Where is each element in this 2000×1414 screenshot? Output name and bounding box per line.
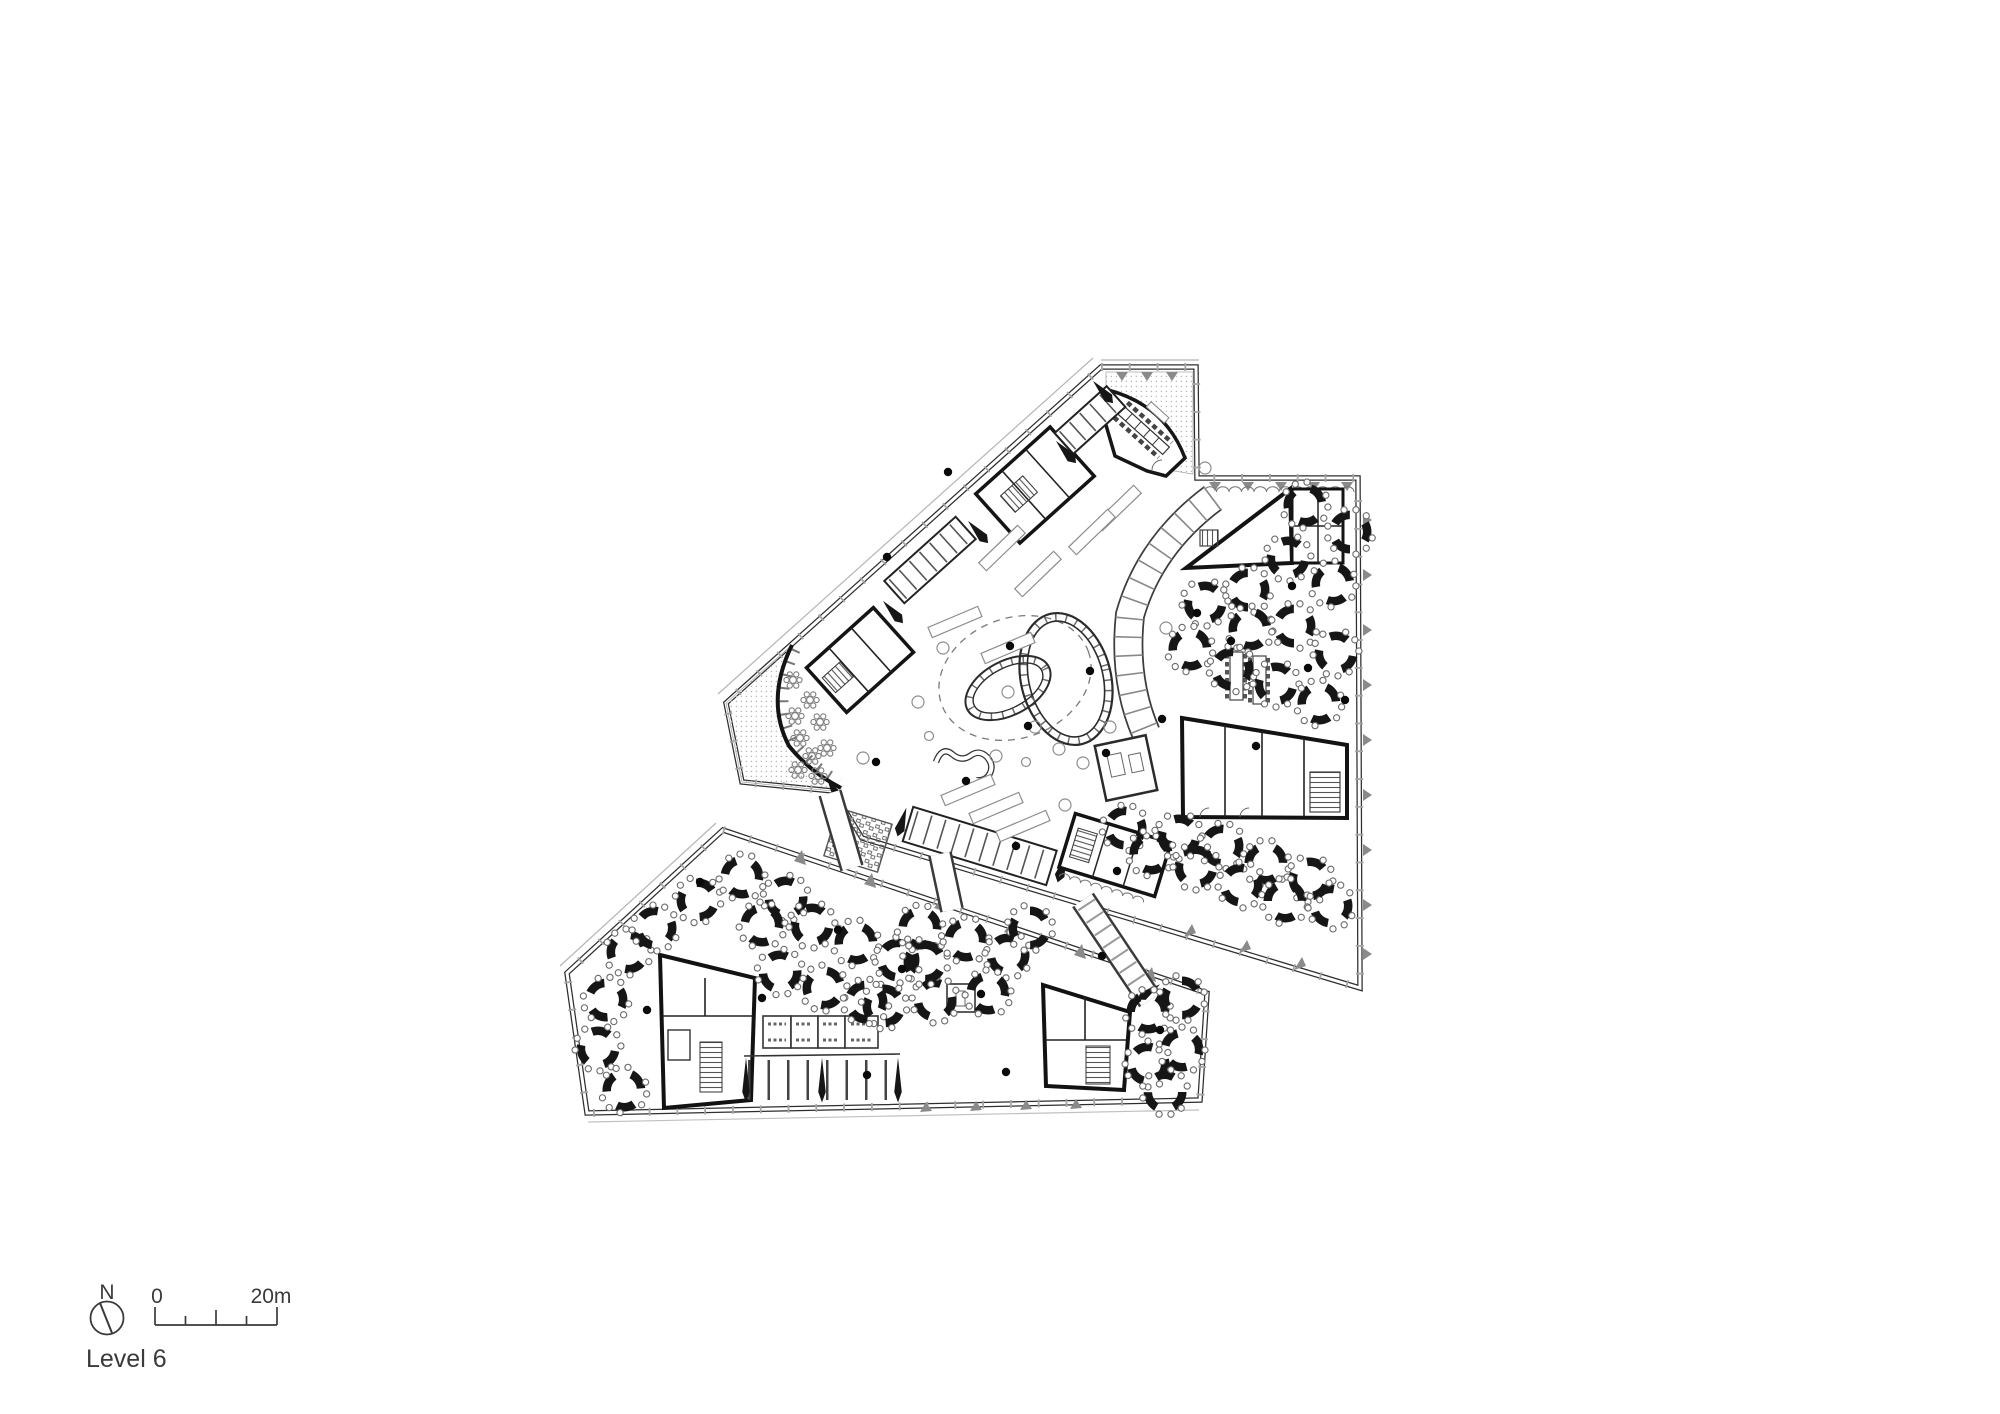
floor-plan-canvas: N 0 20m Level 6 <box>0 0 2000 1414</box>
legend: N 0 20m Level 6 <box>86 1281 291 1373</box>
floor-plan-sheet: N 0 20m Level 6 <box>0 0 2000 1414</box>
core-west <box>660 955 755 1108</box>
stair <box>1200 530 1218 546</box>
stair <box>1310 772 1340 812</box>
north-label: N <box>99 1281 114 1304</box>
north-needle-icon <box>100 1303 112 1333</box>
scale-bar <box>155 1307 277 1325</box>
scale-start-label: 0 <box>151 1285 163 1308</box>
level-title: Level 6 <box>86 1345 167 1373</box>
scale-end-label: 20m <box>251 1285 292 1308</box>
